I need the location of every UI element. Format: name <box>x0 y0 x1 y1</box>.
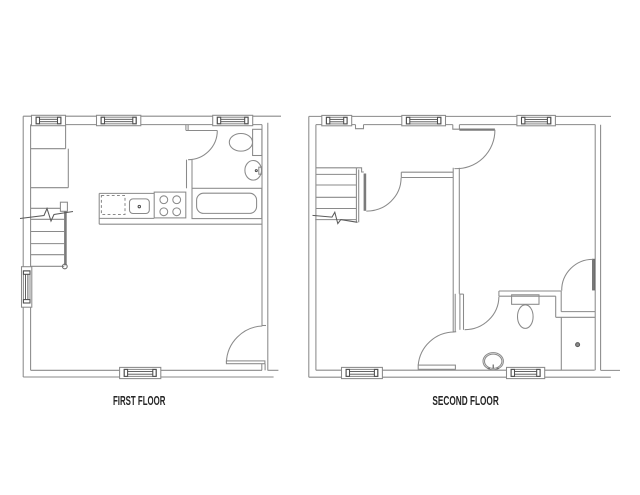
svg-text:FIRST FLOOR: FIRST FLOOR <box>113 393 166 408</box>
svg-text:SECOND FLOOR: SECOND FLOOR <box>432 393 499 408</box>
